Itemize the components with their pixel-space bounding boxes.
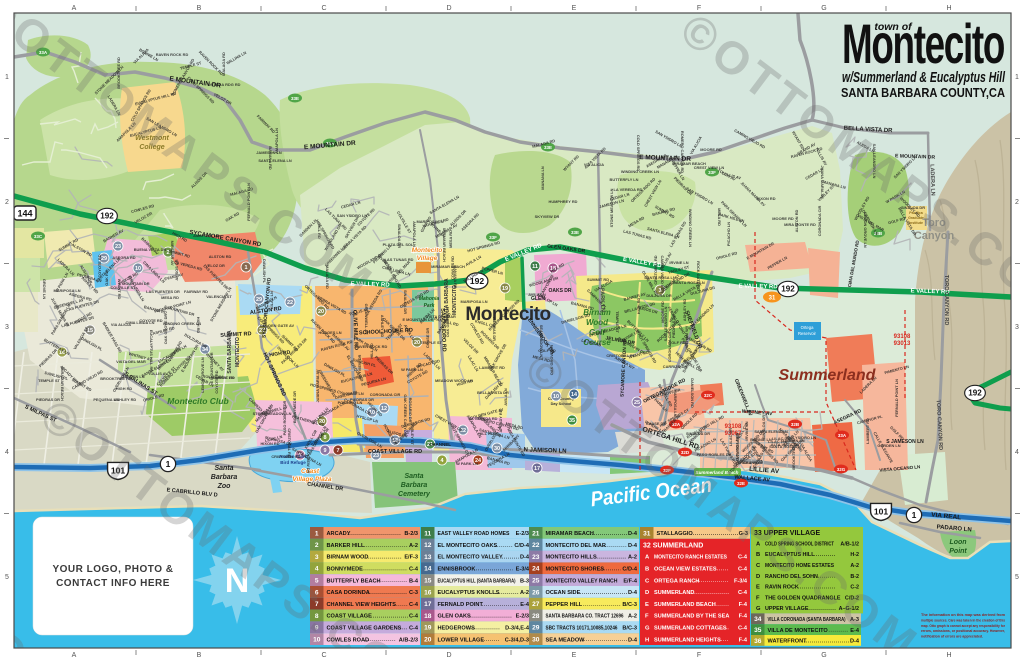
svg-text:CORONADA CIR: CORONADA CIR: [370, 392, 401, 397]
svg-text:PEPPER HILL: PEPPER HILL: [546, 602, 583, 608]
svg-text:SANTA BARBARA COUNTY,CA: SANTA BARBARA COUNTY,CA: [841, 86, 1005, 100]
svg-text:F-4: F-4: [739, 602, 748, 608]
svg-text:1: 1: [912, 510, 917, 520]
svg-text:SUMMIT RD: SUMMIT RD: [587, 277, 609, 282]
svg-text:A: A: [72, 652, 77, 659]
svg-text:19: 19: [502, 286, 508, 292]
svg-text:VIA ALICIA: VIA ALICIA: [584, 162, 604, 167]
svg-text:7: 7: [336, 448, 339, 454]
svg-text:Point: Point: [949, 548, 967, 555]
svg-text:E MOUNTAIN DR: E MOUNTAIN DR: [118, 281, 149, 286]
svg-text:BONNIE LN: BONNIE LN: [750, 437, 772, 442]
svg-text:Village: Village: [417, 255, 438, 262]
svg-text:C/D-4: C/D-4: [514, 543, 529, 549]
svg-text:MESA RD: MESA RD: [717, 208, 722, 226]
svg-text:VILLA DE MONTECITO: VILLA DE MONTECITO: [768, 628, 829, 634]
svg-text:ARCADY: ARCADY: [327, 531, 351, 537]
svg-text:EUCALYPTUS HILL RD: EUCALYPTUS HILL RD: [149, 330, 154, 373]
svg-text:SUMMERLAND COTTAGES: SUMMERLAND COTTAGES: [654, 626, 727, 632]
svg-text:D-4: D-4: [628, 637, 638, 643]
svg-text:B/C-3: B/C-3: [622, 626, 637, 632]
svg-text:C-4: C-4: [738, 590, 748, 596]
svg-text:32C: 32C: [704, 393, 713, 398]
svg-text:MIRAMAR BEACH: MIRAMAR BEACH: [546, 531, 594, 537]
svg-text:C-4: C-4: [738, 626, 748, 632]
svg-text:E: E: [572, 5, 577, 12]
svg-text:G: G: [645, 626, 650, 632]
svg-text:w/Summerland & Eucalyptus Hill: w/Summerland & Eucalyptus Hill: [842, 70, 1006, 86]
svg-text:ASHLEY RD: ASHLEY RD: [114, 397, 137, 402]
svg-text:A-2: A-2: [409, 543, 418, 549]
svg-text:ROSARIO DR: ROSARIO DR: [408, 398, 413, 423]
svg-text:SAN YSIDRO LN: SAN YSIDRO LN: [337, 213, 368, 218]
svg-text:D-4: D-4: [628, 531, 638, 537]
svg-text:11: 11: [532, 264, 538, 270]
svg-text:LAMBERT RD: LAMBERT RD: [865, 418, 870, 444]
svg-text:4: 4: [315, 566, 319, 573]
svg-text:BUTTERFLY BEACH: BUTTERFLY BEACH: [327, 578, 381, 584]
svg-text:SBC TRACTS 10171,10085,10246: SBC TRACTS 10171,10085,10246: [546, 626, 618, 632]
svg-text:OCEAN VIEW ESTATES: OCEAN VIEW ESTATES: [654, 567, 717, 573]
svg-text:TOLLIS AV: TOLLIS AV: [148, 371, 168, 376]
svg-text:SINALOA DR: SINALOA DR: [403, 290, 408, 314]
svg-text:BONNYMEDE: BONNYMEDE: [327, 567, 364, 573]
svg-text:ORTEGA RANCH: ORTEGA RANCH: [654, 578, 699, 584]
svg-text:18: 18: [424, 613, 432, 620]
svg-text:3: 3: [5, 324, 9, 331]
svg-text:F: F: [697, 5, 701, 12]
svg-text:17: 17: [534, 466, 540, 472]
svg-text:Zoo: Zoo: [217, 483, 232, 490]
svg-text:33A: 33A: [838, 433, 847, 438]
svg-text:CARRIZO DR: CARRIZO DR: [663, 364, 688, 369]
svg-text:1: 1: [1015, 74, 1019, 81]
svg-text:A-2: A-2: [520, 590, 529, 596]
svg-text:EL MONTECITO OAKS: EL MONTECITO OAKS: [438, 543, 498, 549]
svg-text:B-3: B-3: [520, 578, 529, 584]
svg-text:Reservoir: Reservoir: [798, 331, 817, 336]
svg-text:Montecito: Montecito: [412, 247, 443, 254]
svg-text:CONTACT INFO HERE: CONTACT INFO HERE: [56, 578, 170, 589]
svg-text:C-3/4,D-3: C-3/4,D-3: [505, 637, 529, 643]
svg-text:29: 29: [532, 625, 540, 632]
svg-text:SUMMERLAND HEIGHTS: SUMMERLAND HEIGHTS: [654, 637, 721, 643]
svg-text:VELOZ DR: VELOZ DR: [205, 263, 225, 268]
svg-text:notification of errors are app: notification of errors are appreciated.: [921, 634, 983, 639]
svg-text:D: D: [446, 5, 451, 12]
svg-text:BUTTERFLY LN: BUTTERFLY LN: [610, 177, 639, 182]
svg-text:SANTA ELENA LN: SANTA ELENA LN: [754, 429, 788, 434]
svg-text:E MOUNTAIN DR: E MOUNTAIN DR: [209, 352, 214, 383]
svg-text:Montecito: Montecito: [842, 12, 1005, 75]
svg-text:MESA RD: MESA RD: [448, 230, 453, 248]
svg-text:MONTECITO VALLEY RANCH: MONTECITO VALLEY RANCH: [546, 578, 618, 584]
svg-text:MOORE RD: MOORE RD: [700, 147, 722, 152]
svg-text:MONTECITO RANCH ESTATES: MONTECITO RANCH ESTATES: [654, 555, 727, 561]
svg-text:COYOTE RD: COYOTE RD: [97, 254, 102, 277]
svg-text:D: D: [446, 652, 451, 659]
svg-text:9: 9: [323, 448, 326, 454]
svg-text:D-4: D-4: [628, 590, 638, 596]
svg-text:H: H: [645, 637, 649, 643]
svg-text:WATERFRONT: WATERFRONT: [768, 639, 808, 645]
svg-text:21: 21: [532, 530, 540, 537]
svg-text:30: 30: [494, 446, 500, 452]
svg-text:CIMA LINDA LN: CIMA LINDA LN: [126, 320, 155, 325]
svg-text:C: C: [321, 652, 326, 659]
svg-text:MESA RD: MESA RD: [161, 295, 179, 300]
svg-text:35: 35: [754, 627, 762, 634]
svg-text:TORO CANYON RD: TORO CANYON RD: [943, 275, 949, 326]
svg-text:31: 31: [769, 296, 776, 302]
svg-text:PASO ROBLES DR: PASO ROBLES DR: [282, 400, 287, 435]
svg-text:OCEAN SIDE: OCEAN SIDE: [546, 590, 581, 596]
svg-text:CORONADA CIR: CORONADA CIR: [667, 332, 672, 363]
svg-text:D: D: [645, 590, 649, 596]
svg-text:SKYVIEW DR: SKYVIEW DR: [535, 214, 560, 219]
svg-text:AVILA LN: AVILA LN: [528, 292, 546, 297]
svg-text:F: F: [645, 614, 649, 620]
svg-text:192: 192: [968, 389, 982, 398]
svg-text:B/C-3: B/C-3: [622, 602, 637, 608]
svg-text:33F: 33F: [708, 170, 716, 175]
svg-text:A: A: [72, 5, 77, 12]
svg-text:ALSTON RD: ALSTON RD: [794, 209, 799, 232]
svg-text:25: 25: [532, 578, 540, 585]
svg-text:H-2: H-2: [850, 552, 859, 558]
svg-text:28: 28: [532, 613, 540, 620]
svg-text:G: G: [756, 606, 761, 612]
svg-text:33E: 33E: [571, 230, 579, 235]
svg-text:EAST VALLEY ROAD HOMES: EAST VALLEY ROAD HOMES: [438, 531, 510, 537]
svg-text:CAMINO VIEJO RD: CAMINO VIEJO RD: [660, 255, 665, 290]
svg-text:HEDGEROWS: HEDGEROWS: [438, 626, 476, 632]
svg-text:COAST VILLAGE RD: COAST VILLAGE RD: [368, 449, 422, 455]
svg-text:BONNIE LN: BONNIE LN: [342, 391, 364, 396]
svg-text:MARIPOSA LN: MARIPOSA LN: [460, 299, 487, 304]
svg-text:12: 12: [424, 542, 432, 549]
svg-text:TEMPLE ST: TEMPLE ST: [420, 340, 442, 345]
svg-text:B: B: [197, 5, 202, 12]
svg-text:B: B: [645, 567, 649, 573]
svg-text:Cemetery: Cemetery: [398, 491, 431, 498]
svg-text:13: 13: [424, 554, 432, 561]
svg-text:2: 2: [1015, 199, 1019, 206]
svg-text:SEA MEADOW: SEA MEADOW: [546, 637, 586, 643]
svg-text:E-4: E-4: [520, 602, 530, 608]
svg-text:E: E: [645, 602, 649, 608]
svg-text:F: F: [697, 652, 701, 659]
svg-text:Bird Refuge: Bird Refuge: [280, 460, 306, 465]
svg-text:CRISTOBAL RD: CRISTOBAL RD: [271, 454, 300, 459]
svg-text:22: 22: [532, 542, 540, 549]
svg-text:E/F-3: E/F-3: [404, 555, 418, 561]
svg-text:32 SUMMERLAND: 32 SUMMERLAND: [643, 542, 703, 549]
svg-text:VISTA DEL MAR: VISTA DEL MAR: [426, 314, 456, 319]
svg-text:FERNALD POINT LN: FERNALD POINT LN: [894, 379, 899, 417]
svg-text:1: 1: [315, 530, 319, 537]
svg-text:PIEDRAS DR: PIEDRAS DR: [350, 397, 374, 402]
svg-text:MANANA LN: MANANA LN: [540, 166, 545, 190]
svg-text:EL MONTECITO VALLEY: EL MONTECITO VALLEY: [438, 555, 504, 561]
svg-text:1: 1: [244, 265, 247, 271]
svg-text:15: 15: [424, 578, 432, 585]
svg-text:JAMESON LN: JAMESON LN: [256, 150, 282, 155]
svg-text:192: 192: [781, 285, 795, 294]
svg-text:E-2/3: E-2/3: [516, 531, 529, 537]
svg-text:SUMMERLAND BEACH: SUMMERLAND BEACH: [654, 602, 716, 608]
svg-text:MOORE RD: MOORE RD: [660, 301, 665, 323]
svg-text:errors, omissions, or posit: errors, omissions, or positional accurac…: [921, 628, 1005, 633]
svg-text:MONTECITO: MONTECITO: [452, 285, 458, 315]
svg-text:19: 19: [424, 625, 432, 632]
svg-text:F-4: F-4: [739, 614, 748, 620]
svg-text:LAS TUNAS RD: LAS TUNAS RD: [385, 257, 414, 262]
svg-text:MONTECITO SHORES: MONTECITO SHORES: [546, 567, 605, 573]
svg-text:W PARK LN: W PARK LN: [456, 461, 478, 466]
svg-text:34: 34: [754, 616, 762, 623]
svg-text:WINDING CREEK LN: WINDING CREEK LN: [688, 209, 693, 247]
svg-text:30: 30: [532, 637, 540, 644]
svg-text:24: 24: [532, 566, 540, 573]
svg-text:36: 36: [754, 638, 762, 645]
svg-text:D-3/4,E-4: D-3/4,E-4: [505, 626, 530, 632]
svg-text:33C: 33C: [34, 234, 43, 239]
svg-text:A/B-1/2: A/B-1/2: [840, 541, 859, 547]
svg-text:D-4: D-4: [628, 543, 638, 549]
svg-text:23: 23: [115, 244, 121, 250]
svg-text:D: D: [756, 574, 760, 580]
svg-text:MIRAMAR BEACH: MIRAMAR BEACH: [431, 264, 465, 269]
svg-text:VISTA DEL MAR: VISTA DEL MAR: [116, 359, 146, 364]
svg-text:LILAC DR: LILAC DR: [728, 428, 733, 446]
svg-text:CRISTOBAL RD: CRISTOBAL RD: [653, 255, 658, 284]
svg-text:D-4: D-4: [520, 555, 530, 561]
svg-text:5: 5: [1015, 574, 1019, 581]
svg-text:IRVINE LN: IRVINE LN: [669, 260, 688, 265]
svg-text:PICACHO LN: PICACHO LN: [726, 222, 731, 246]
svg-text:E: E: [572, 652, 577, 659]
svg-text:23: 23: [532, 554, 540, 561]
svg-text:32B: 32B: [791, 422, 800, 427]
svg-text:SUMMERLAND: SUMMERLAND: [654, 590, 694, 596]
svg-text:33E: 33E: [291, 96, 299, 101]
svg-text:BROOKTREE RD: BROOKTREE RD: [791, 438, 796, 470]
svg-text:YOUR LOGO, PHOTO &: YOUR LOGO, PHOTO &: [52, 564, 173, 575]
svg-text:B-4: B-4: [409, 578, 419, 584]
svg-text:Summerland: Summerland: [779, 367, 877, 384]
svg-text:STALLAGGIO: STALLAGGIO: [657, 531, 694, 537]
svg-text:The information on this ma: The information on this map was derived …: [921, 612, 1005, 617]
svg-text:CORONADA CIR: CORONADA CIR: [817, 206, 822, 237]
svg-text:ASHLEY RD: ASHLEY RD: [380, 315, 385, 338]
svg-text:H: H: [946, 5, 951, 12]
svg-text:16: 16: [424, 589, 432, 596]
svg-text:PIEDRAS DR: PIEDRAS DR: [492, 317, 497, 341]
svg-text:C-3: C-3: [409, 590, 418, 596]
svg-text:Ortega: Ortega: [801, 325, 814, 330]
svg-text:WINDING CREEK LN: WINDING CREEK LN: [163, 321, 201, 326]
svg-text:GOLDEN GATE AV: GOLDEN GATE AV: [260, 323, 295, 328]
svg-text:GARDEN LN: GARDEN LN: [121, 374, 144, 379]
svg-text:4: 4: [1015, 449, 1019, 456]
svg-text:ROMERO CANYON RD: ROMERO CANYON RD: [680, 131, 685, 173]
svg-text:multiple sources. Care was tak: multiple sources. Care was taken in the …: [921, 617, 1006, 622]
svg-text:3: 3: [1015, 324, 1019, 331]
svg-text:93108: 93108: [894, 334, 911, 340]
svg-text:MONTECITO: MONTECITO: [235, 337, 241, 367]
svg-text:101: 101: [874, 506, 889, 516]
svg-text:20: 20: [424, 637, 432, 644]
svg-text:SANTA BARBARA CO. TRACT 12696: SANTA BARBARA CO. TRACT 12696: [546, 614, 624, 620]
svg-text:ALSTON RD: ALSTON RD: [209, 254, 232, 259]
svg-text:25: 25: [634, 400, 640, 406]
svg-text:MIRA MONTE RD: MIRA MONTE RD: [784, 222, 816, 227]
svg-text:FAIRWAY RD: FAIRWAY RD: [184, 289, 208, 294]
svg-text:RAVEN ROCK RD: RAVEN ROCK RD: [156, 52, 189, 57]
svg-text:SUMMERLAND BY THE SEA: SUMMERLAND BY THE SEA: [654, 614, 729, 620]
svg-text:TEMPLE ST: TEMPLE ST: [38, 378, 60, 383]
svg-text:C-4: C-4: [409, 567, 419, 573]
svg-text:C/D-4: C/D-4: [622, 567, 637, 573]
svg-text:Santa: Santa: [404, 473, 423, 480]
svg-text:SAN YSIDRO LN: SAN YSIDRO LN: [786, 435, 817, 440]
svg-text:MONTECITO HILLS: MONTECITO HILLS: [546, 555, 597, 561]
svg-text:192: 192: [100, 212, 114, 221]
svg-text:MOORE RD: MOORE RD: [772, 216, 794, 221]
svg-text:G: G: [821, 5, 826, 12]
svg-text:A-2: A-2: [850, 563, 859, 569]
svg-text:EUCALYPTUS HILL (SANTA BARBARA: EUCALYPTUS HILL (SANTA BARBARA): [438, 578, 516, 584]
svg-text:E-2/3: E-2/3: [516, 614, 529, 620]
svg-text:OAK CREEK CANYON: OAK CREEK CANYON: [403, 394, 408, 435]
svg-text:CHANNEL: CHANNEL: [429, 442, 451, 447]
svg-text:Barbara: Barbara: [211, 474, 238, 481]
svg-text:26: 26: [532, 589, 540, 596]
svg-text:5: 5: [5, 574, 9, 581]
svg-text:93013: 93013: [894, 341, 911, 347]
svg-text:LAS FUENTES DR: LAS FUENTES DR: [146, 289, 180, 294]
svg-text:144: 144: [17, 209, 32, 219]
svg-text:DAWLISH PL: DAWLISH PL: [262, 259, 267, 284]
svg-text:A/B-2/3: A/B-2/3: [399, 637, 418, 643]
svg-text:AMAPOLA LN: AMAPOLA LN: [412, 221, 417, 247]
svg-text:E VALLEY RD: E VALLEY RD: [738, 284, 778, 291]
svg-text:WINDING CREEK LN: WINDING CREEK LN: [621, 169, 659, 174]
svg-text:20: 20: [318, 309, 324, 315]
svg-text:Santa: Santa: [214, 465, 233, 472]
svg-text:VARLEY ST: VARLEY ST: [410, 423, 415, 445]
svg-text:2: 2: [315, 542, 319, 549]
svg-text:B-2/3: B-2/3: [404, 531, 418, 537]
svg-text:BARKER HILL: BARKER HILL: [327, 543, 365, 549]
svg-text:2: 2: [5, 199, 9, 206]
svg-text:ASEGRA RD: ASEGRA RD: [112, 255, 135, 260]
svg-text:27: 27: [532, 601, 540, 608]
svg-text:GROVE LN: GROVE LN: [42, 279, 47, 300]
svg-text:STONE MEADOW LN: STONE MEADOW LN: [609, 188, 614, 227]
svg-text:E-3/4: E-3/4: [516, 567, 530, 573]
svg-text:SANTA ELENA LN: SANTA ELENA LN: [258, 158, 292, 163]
svg-text:B: B: [197, 652, 202, 659]
svg-text:C-4: C-4: [738, 567, 748, 573]
svg-text:UPPER VILLAGE: UPPER VILLAGE: [765, 606, 809, 612]
svg-text:HIGH RD: HIGH RD: [116, 386, 133, 391]
svg-text:ASHLEY RD: ASHLEY RD: [682, 299, 687, 322]
svg-text:14: 14: [424, 566, 432, 573]
svg-text:A-2: A-2: [628, 614, 637, 620]
svg-text:E/F-4: E/F-4: [623, 578, 638, 584]
svg-text:MARIPOSA LN: MARIPOSA LN: [416, 219, 443, 224]
svg-text:Loon: Loon: [949, 539, 966, 546]
svg-text:GLEN OAKS: GLEN OAKS: [438, 614, 472, 620]
svg-text:22: 22: [287, 300, 293, 306]
svg-text:BIRNAM WOOD: BIRNAM WOOD: [327, 555, 369, 561]
svg-text:AMAPOLA LN: AMAPOLA LN: [193, 233, 219, 238]
svg-text:HIGH RD: HIGH RD: [196, 317, 201, 334]
svg-text:Barbara: Barbara: [401, 482, 428, 489]
svg-text:Park: Park: [424, 303, 435, 309]
svg-text:H: H: [946, 652, 951, 659]
svg-text:FERNALD POINT: FERNALD POINT: [438, 602, 484, 608]
svg-text:1: 1: [5, 74, 9, 81]
svg-text:ORTEGA RDG RD: ORTEGA RDG RD: [208, 82, 241, 87]
svg-text:SANTA ROSA LN: SANTA ROSA LN: [769, 444, 801, 449]
svg-text:OAKS DR: OAKS DR: [548, 288, 571, 294]
svg-text:33F: 33F: [489, 235, 497, 240]
svg-text:F: F: [756, 595, 760, 601]
svg-text:LOWER VILLAGE: LOWER VILLAGE: [438, 637, 485, 643]
svg-text:COLD SPRINGS RD: COLD SPRINGS RD: [636, 135, 641, 172]
svg-text:HUMPHREY RD: HUMPHREY RD: [549, 199, 578, 204]
svg-text:3: 3: [315, 554, 319, 561]
svg-text:E: E: [756, 585, 760, 591]
svg-text:MONTECITO DEL MAR: MONTECITO DEL MAR: [546, 543, 606, 549]
svg-text:4: 4: [5, 449, 9, 456]
svg-text:SKYVIEW DR: SKYVIEW DR: [306, 449, 311, 474]
svg-text:11: 11: [424, 530, 431, 537]
svg-text:31: 31: [643, 530, 651, 537]
svg-text:Montecito Club: Montecito Club: [167, 396, 228, 406]
svg-text:F-3/4: F-3/4: [734, 578, 748, 584]
svg-text:map. Otto graph is cannot acce: map. Otto graph is cannot accept any res…: [921, 623, 1005, 628]
svg-text:C: C: [321, 5, 326, 12]
svg-text:C-4: C-4: [409, 614, 419, 620]
svg-text:ENNISBROOK: ENNISBROOK: [438, 567, 476, 573]
svg-text:G: G: [821, 652, 826, 659]
svg-text:BANANA RD: BANANA RD: [453, 265, 458, 289]
svg-text:C-4: C-4: [409, 626, 419, 632]
svg-text:C-4: C-4: [409, 602, 419, 608]
svg-text:HIXON RD: HIXON RD: [260, 441, 279, 446]
svg-text:A-2: A-2: [628, 555, 637, 561]
svg-text:STONE MEADOW LN: STONE MEADOW LN: [253, 411, 292, 416]
svg-text:F-4: F-4: [739, 637, 748, 643]
svg-text:EUCALYPTUS KNOLLS: EUCALYPTUS KNOLLS: [438, 590, 500, 596]
svg-text:CRISTOBAL RD: CRISTOBAL RD: [287, 428, 292, 457]
svg-text:Wood: Wood: [586, 318, 609, 327]
svg-text:DANIELSON RD: DANIELSON RD: [690, 378, 695, 408]
svg-text:CHASE DR: CHASE DR: [425, 328, 430, 349]
svg-text:17: 17: [424, 601, 432, 608]
svg-text:32G: 32G: [837, 467, 846, 472]
